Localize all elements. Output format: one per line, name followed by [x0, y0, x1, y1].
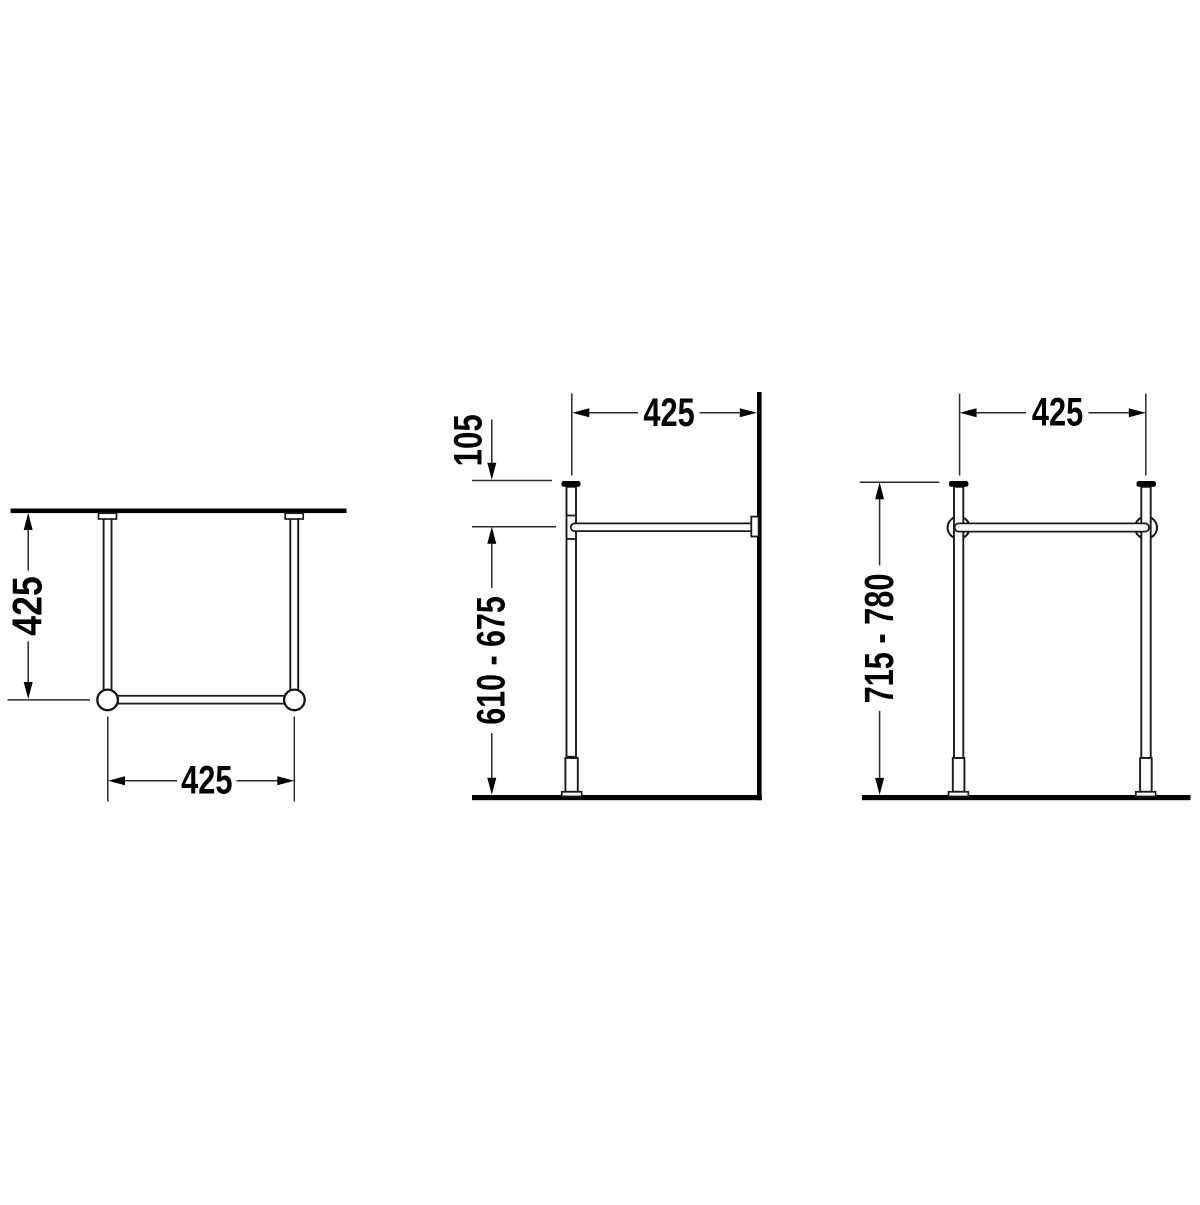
svg-text:425: 425: [643, 390, 694, 435]
svg-text:715 - 780: 715 - 780: [856, 574, 902, 704]
svg-text:425: 425: [1032, 389, 1083, 434]
svg-text:610 - 675: 610 - 675: [470, 596, 514, 725]
svg-text:105: 105: [446, 414, 491, 466]
svg-text:425: 425: [5, 576, 51, 636]
svg-text:425: 425: [181, 758, 232, 803]
